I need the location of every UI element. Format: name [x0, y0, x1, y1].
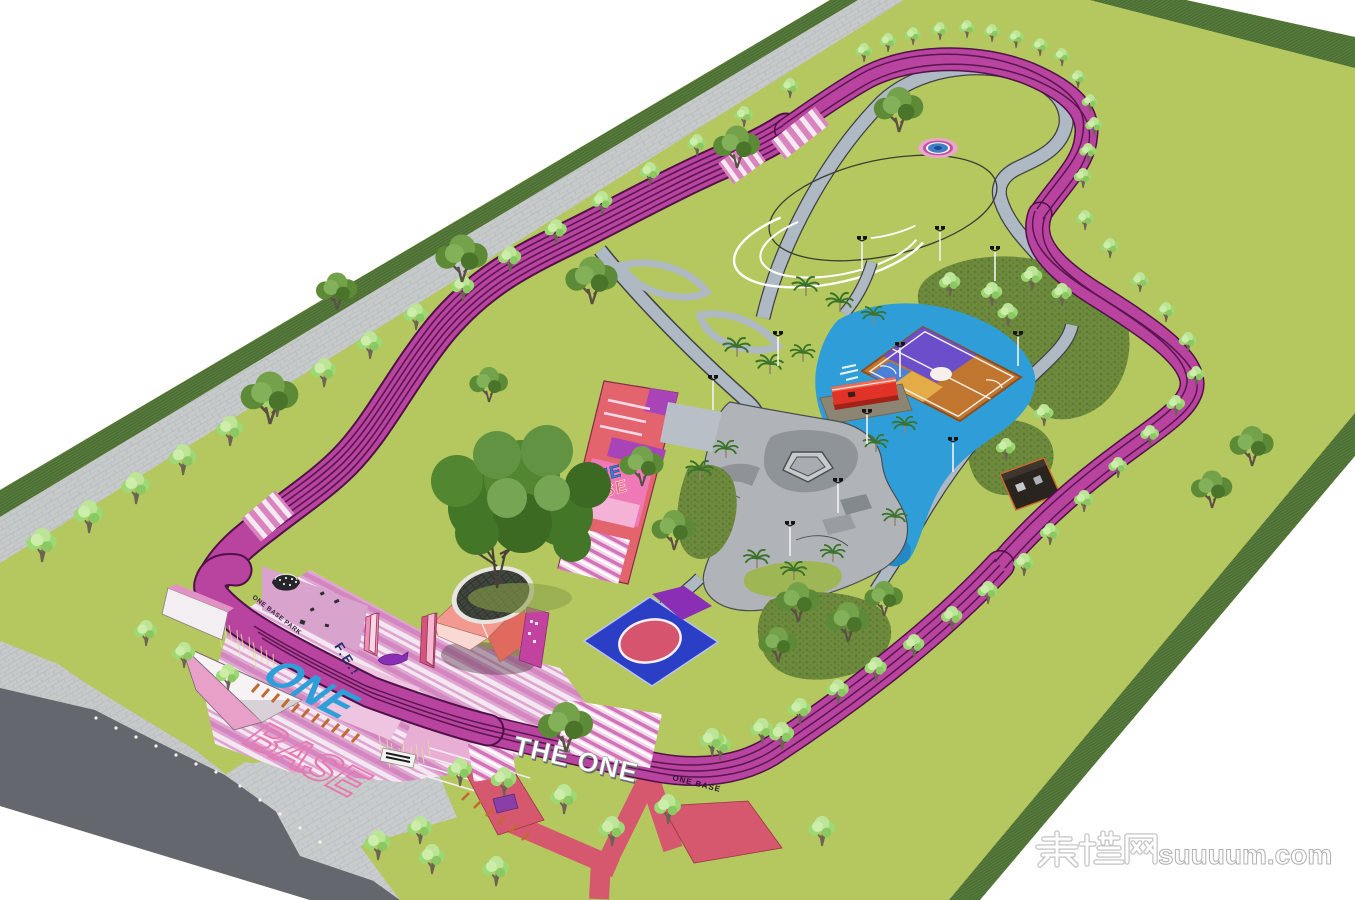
svg-text:suuuum.com: suuuum.com: [1158, 839, 1332, 870]
